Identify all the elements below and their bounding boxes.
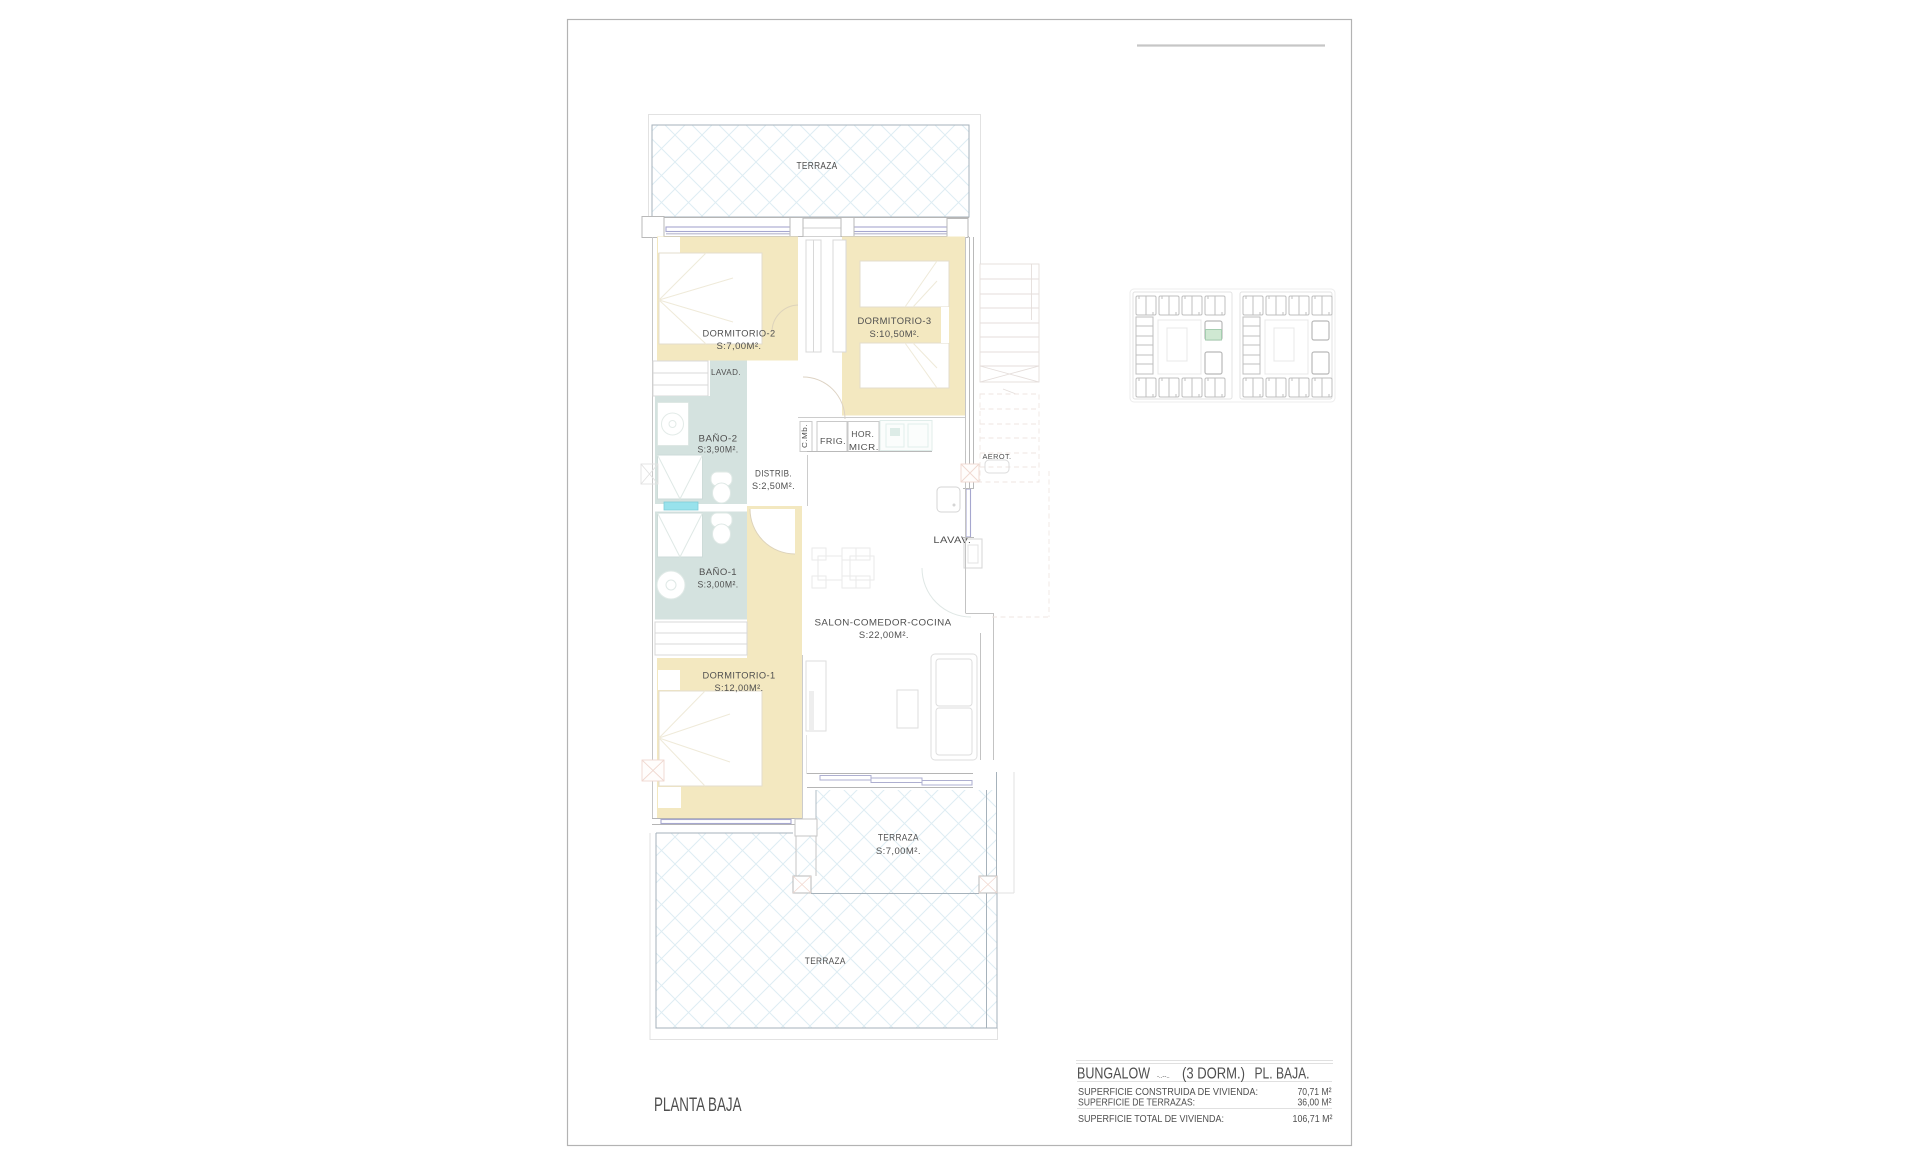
svg-text:S:10,50M².: S:10,50M². xyxy=(870,329,920,340)
svg-text:PL. BAJA.: PL. BAJA. xyxy=(1255,1066,1310,1083)
svg-text:TERRAZA: TERRAZA xyxy=(805,956,846,967)
svg-text:DORMITORIO-3: DORMITORIO-3 xyxy=(858,316,932,327)
svg-text:SUPERFICIE TOTAL DE VIVIENDA:: SUPERFICIE TOTAL DE VIVIENDA: xyxy=(1078,1114,1224,1125)
svg-text:BAÑO-2: BAÑO-2 xyxy=(699,434,738,445)
svg-text:SALON-COMEDOR-COCINA: SALON-COMEDOR-COCINA xyxy=(815,618,952,629)
svg-text:DORMITORIO-2: DORMITORIO-2 xyxy=(703,329,776,340)
svg-text:LAVAD.: LAVAD. xyxy=(711,368,741,377)
svg-text:PLANTA BAJA: PLANTA BAJA xyxy=(654,1095,742,1116)
svg-text:S:7,00M².: S:7,00M². xyxy=(876,846,921,857)
svg-text:MICR.: MICR. xyxy=(849,442,879,452)
svg-text:TERRAZA: TERRAZA xyxy=(797,161,838,172)
svg-text:FRIG.: FRIG. xyxy=(820,436,846,446)
svg-text:BAÑO-1: BAÑO-1 xyxy=(699,567,737,578)
svg-text:S:7,00M².: S:7,00M². xyxy=(717,341,762,352)
svg-text:SUPERFICIE DE TERRAZAS:: SUPERFICIE DE TERRAZAS: xyxy=(1078,1098,1195,1109)
svg-text:DORMITORIO-1: DORMITORIO-1 xyxy=(703,671,776,682)
svg-text:S:22,00M².: S:22,00M². xyxy=(859,630,909,641)
svg-text:DISTRIB.: DISTRIB. xyxy=(755,469,792,480)
svg-text:70,71 M²: 70,71 M² xyxy=(1298,1087,1333,1098)
svg-text:S:3,00M².: S:3,00M². xyxy=(698,580,739,591)
svg-text:S:2,50M².: S:2,50M². xyxy=(752,481,795,492)
svg-text:(3 DORM.): (3 DORM.) xyxy=(1182,1066,1245,1083)
svg-text:C.Mb.: C.Mb. xyxy=(802,424,809,448)
svg-text:36,00 M²: 36,00 M² xyxy=(1298,1098,1333,1109)
svg-text:S:3,90M².: S:3,90M². xyxy=(698,445,739,456)
svg-text:TERRAZA: TERRAZA xyxy=(878,833,919,844)
svg-text:S:12,00M².: S:12,00M². xyxy=(715,683,764,694)
svg-text:BUNGALOW: BUNGALOW xyxy=(1077,1066,1151,1083)
svg-text:-..--..: -..--.. xyxy=(1157,1074,1170,1080)
svg-text:106,71 M²: 106,71 M² xyxy=(1293,1114,1334,1125)
svg-text:HOR.: HOR. xyxy=(851,429,874,439)
svg-text:SUPERFICIE CONSTRUIDA DE VIVIE: SUPERFICIE CONSTRUIDA DE VIVIENDA: xyxy=(1078,1087,1258,1098)
